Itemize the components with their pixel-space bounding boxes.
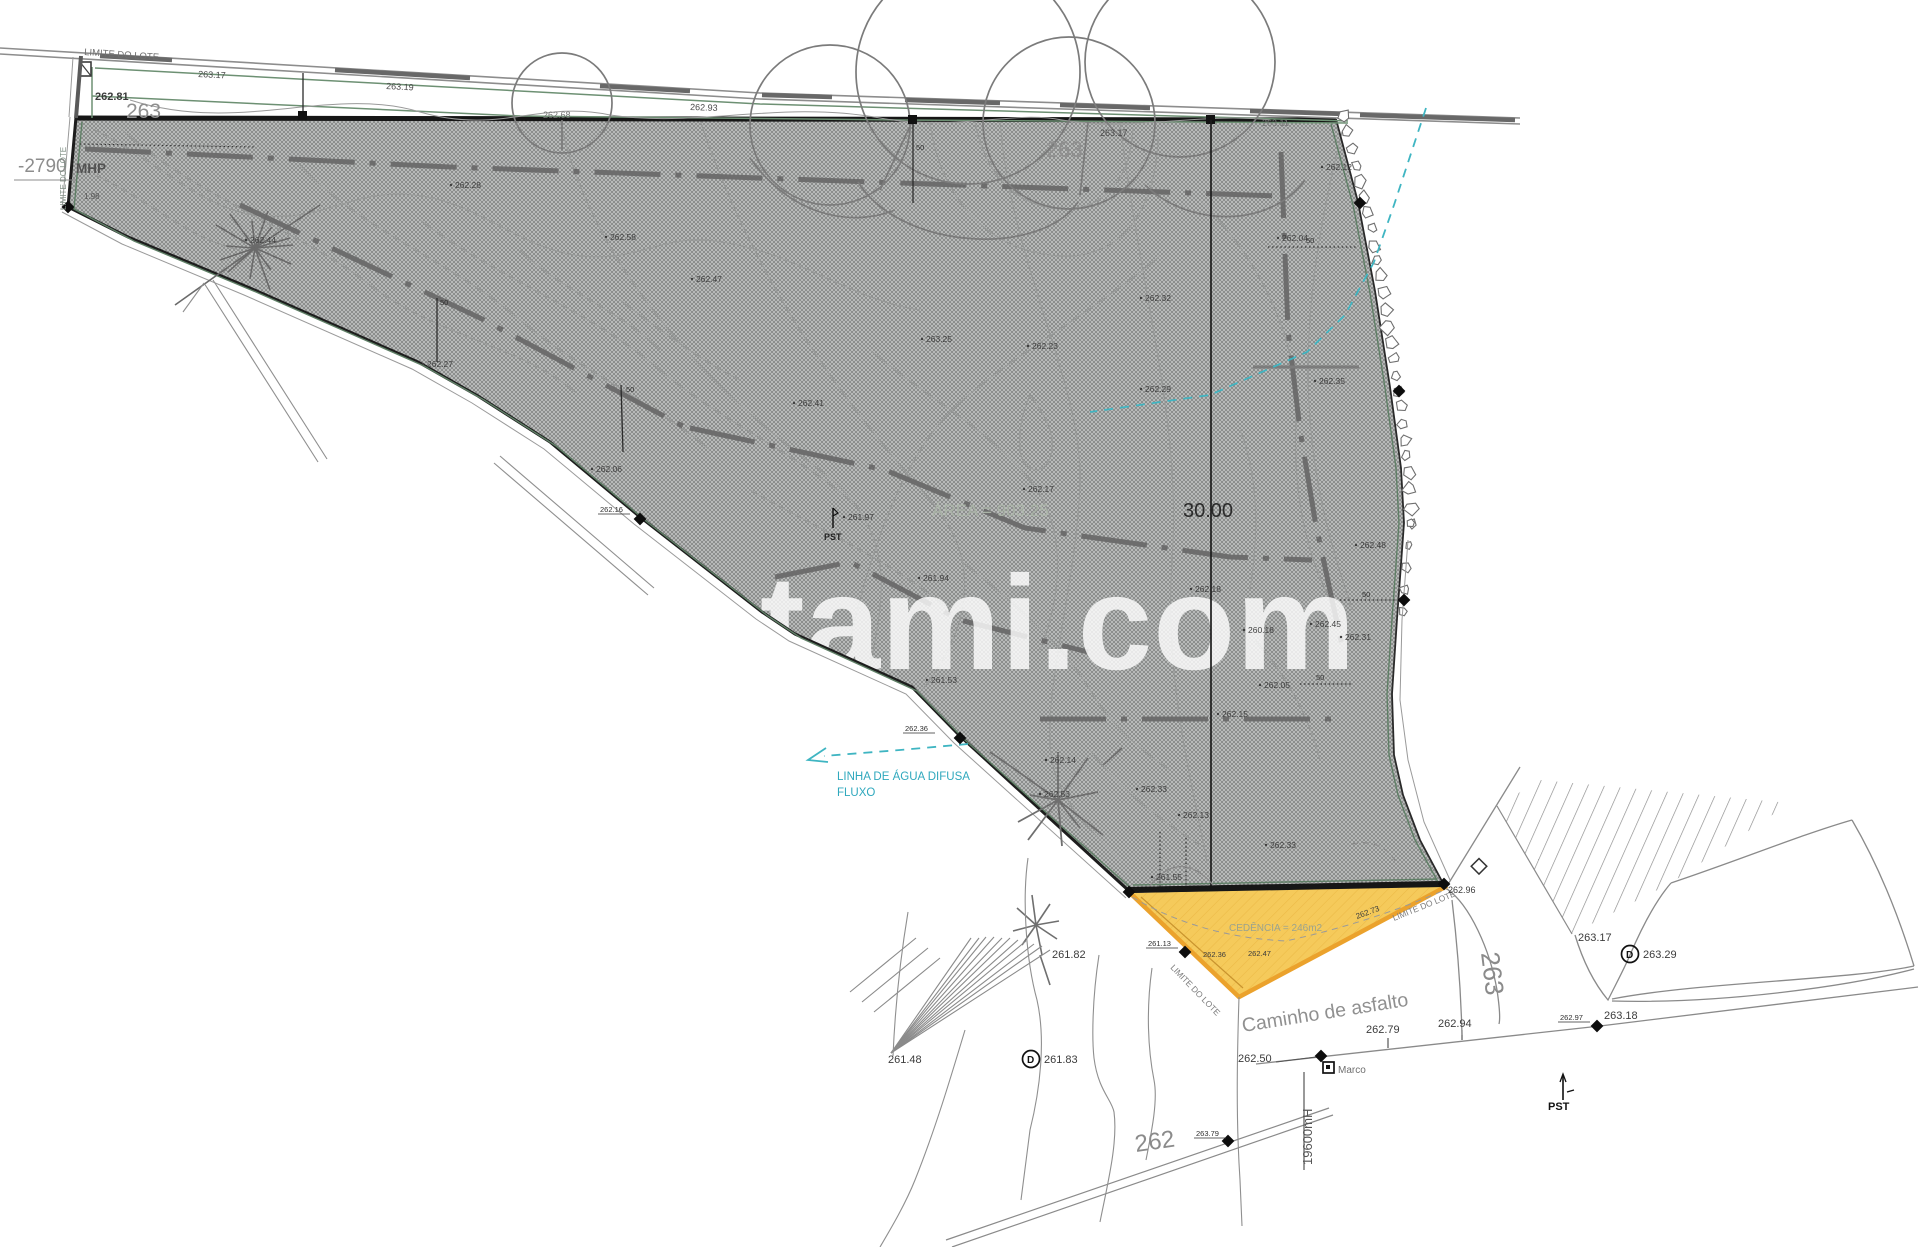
svg-text:262.12: 262.12 [1326,162,1352,172]
svg-text:263.17: 263.17 [198,69,226,80]
svg-text:260.18: 260.18 [1248,625,1274,635]
svg-text:261.83: 261.83 [1044,1054,1078,1066]
svg-text:262.45: 262.45 [1315,619,1341,629]
svg-text:tami.com: tami.com [760,549,1356,698]
svg-text:262.36: 262.36 [1203,950,1226,959]
svg-text:262.53: 262.53 [1044,789,1070,799]
svg-text:263.17: 263.17 [1578,932,1612,944]
svg-text:262.33: 262.33 [1141,784,1167,794]
svg-text:263.18: 263.18 [1604,1010,1638,1022]
svg-text:262.94: 262.94 [1438,1018,1472,1030]
svg-text:263.11: 263.11 [1262,118,1289,128]
svg-text:262.18: 262.18 [1195,584,1221,594]
svg-text:262.47: 262.47 [1248,949,1271,958]
svg-text:50: 50 [440,298,448,307]
svg-text:263: 263 [126,100,161,123]
svg-text:262.96: 262.96 [1448,885,1476,895]
svg-text:CEDÊNCIA = 246m2: CEDÊNCIA = 246m2 [1229,921,1323,934]
svg-text:262: 262 [1133,1126,1176,1158]
svg-text:261.48: 261.48 [888,1054,922,1066]
svg-text:262.50: 262.50 [1238,1053,1272,1065]
svg-text:262.36: 262.36 [905,724,928,733]
svg-text:261.55: 261.55 [1156,872,1182,882]
svg-text:262.48: 262.48 [1360,540,1386,550]
svg-text:PST: PST [824,532,842,542]
svg-text:262.32: 262.32 [1145,293,1171,303]
svg-text:261.53: 261.53 [931,675,957,685]
svg-text:50: 50 [1316,673,1324,682]
svg-text:262.31: 262.31 [1345,632,1371,642]
svg-text:262.33: 262.33 [1270,840,1296,850]
svg-text:263.25: 263.25 [926,334,952,344]
svg-text:262.44: 262.44 [250,235,276,245]
svg-text:262.29: 262.29 [1145,384,1171,394]
svg-text:262.68: 262.68 [543,110,571,120]
svg-text:262.14: 262.14 [1050,755,1076,765]
svg-text:263: 263 [1046,137,1083,162]
svg-text:MHP: MHP [76,161,106,176]
svg-text:261.82: 261.82 [1052,949,1086,961]
svg-text:261.94: 261.94 [923,573,949,583]
svg-text:1.98: 1.98 [84,192,100,201]
svg-text:50: 50 [916,143,924,152]
svg-text:262.17: 262.17 [1028,484,1054,494]
svg-text:262.41: 262.41 [798,398,824,408]
svg-text:262.35: 262.35 [1319,376,1345,386]
svg-text:D: D [1626,950,1633,961]
svg-text:D: D [1027,1055,1034,1066]
svg-text:263.29: 263.29 [1643,949,1677,961]
svg-text:262.05: 262.05 [1264,680,1290,690]
svg-text:FLUXO: FLUXO [837,787,875,799]
svg-text:262.93: 262.93 [690,102,718,113]
svg-text:263.17: 263.17 [1100,128,1128,138]
svg-text:261.97: 261.97 [848,512,874,522]
svg-text:262.16: 262.16 [600,505,623,514]
svg-text:263.19: 263.19 [386,81,414,92]
svg-text:30.00: 30.00 [1183,500,1233,522]
svg-text:262.47: 262.47 [696,274,722,284]
svg-text:ÁREA = 903.25: ÁREA = 903.25 [932,501,1049,520]
svg-text:19600mH: 19600mH [1300,1109,1315,1165]
svg-text:262.06: 262.06 [596,464,622,474]
svg-text:263.79: 263.79 [1196,1129,1219,1138]
svg-text:262.13: 262.13 [1183,810,1209,820]
svg-text:262.23: 262.23 [1032,341,1058,351]
svg-text:262.28: 262.28 [455,180,481,190]
svg-text:263: 263 [1475,950,1510,997]
svg-text:262.97: 262.97 [1560,1013,1583,1022]
svg-text:262.04: 262.04 [1282,233,1308,243]
svg-text:262.27: 262.27 [427,359,453,369]
svg-text:262.15: 262.15 [1222,709,1248,719]
svg-text:262.79: 262.79 [1366,1024,1400,1036]
svg-text:50: 50 [1362,590,1370,599]
svg-text:262.81: 262.81 [95,91,129,103]
svg-text:50: 50 [626,385,634,394]
svg-text:PST: PST [1548,1101,1570,1113]
svg-text:LINHA DE ÁGUA DIFUSA: LINHA DE ÁGUA DIFUSA [837,770,970,783]
svg-text:LIMITE DO LOTE: LIMITE DO LOTE [59,147,68,210]
svg-text:262.58: 262.58 [610,232,636,242]
svg-text:261.13: 261.13 [1148,939,1171,948]
svg-text:Marco: Marco [1338,1065,1366,1076]
svg-text:50: 50 [1306,236,1314,245]
